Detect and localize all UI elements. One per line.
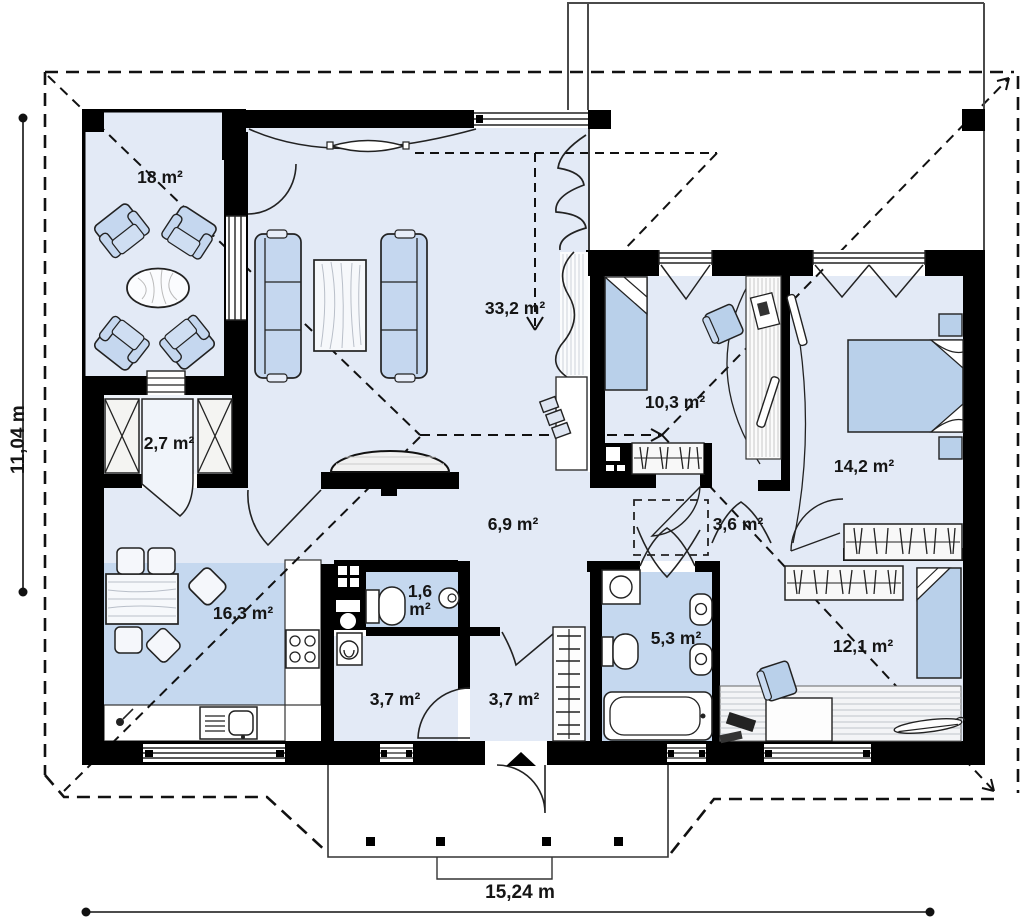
- svg-text:6,9 m²: 6,9 m²: [488, 514, 539, 534]
- svg-text:10,3 m²: 10,3 m²: [645, 392, 705, 412]
- svg-text:3,7 m²: 3,7 m²: [489, 689, 540, 709]
- svg-text:33,2 m²: 33,2 m²: [485, 298, 545, 318]
- svg-text:m²: m²: [409, 599, 431, 619]
- svg-text:3,7 m²: 3,7 m²: [370, 689, 421, 709]
- svg-text:11,04 m: 11,04 m: [8, 405, 29, 474]
- svg-text:12,1 m²: 12,1 m²: [833, 636, 893, 656]
- svg-text:5,3 m²: 5,3 m²: [651, 628, 702, 648]
- svg-text:18 m²: 18 m²: [137, 167, 183, 187]
- svg-text:14,2 m²: 14,2 m²: [834, 456, 894, 476]
- svg-text:16,3 m²: 16,3 m²: [213, 603, 273, 623]
- svg-text:1,6: 1,6: [408, 581, 433, 601]
- svg-text:15,24 m: 15,24 m: [485, 882, 555, 903]
- svg-text:3,6 m²: 3,6 m²: [713, 514, 764, 534]
- svg-text:2,7 m²: 2,7 m²: [144, 433, 195, 453]
